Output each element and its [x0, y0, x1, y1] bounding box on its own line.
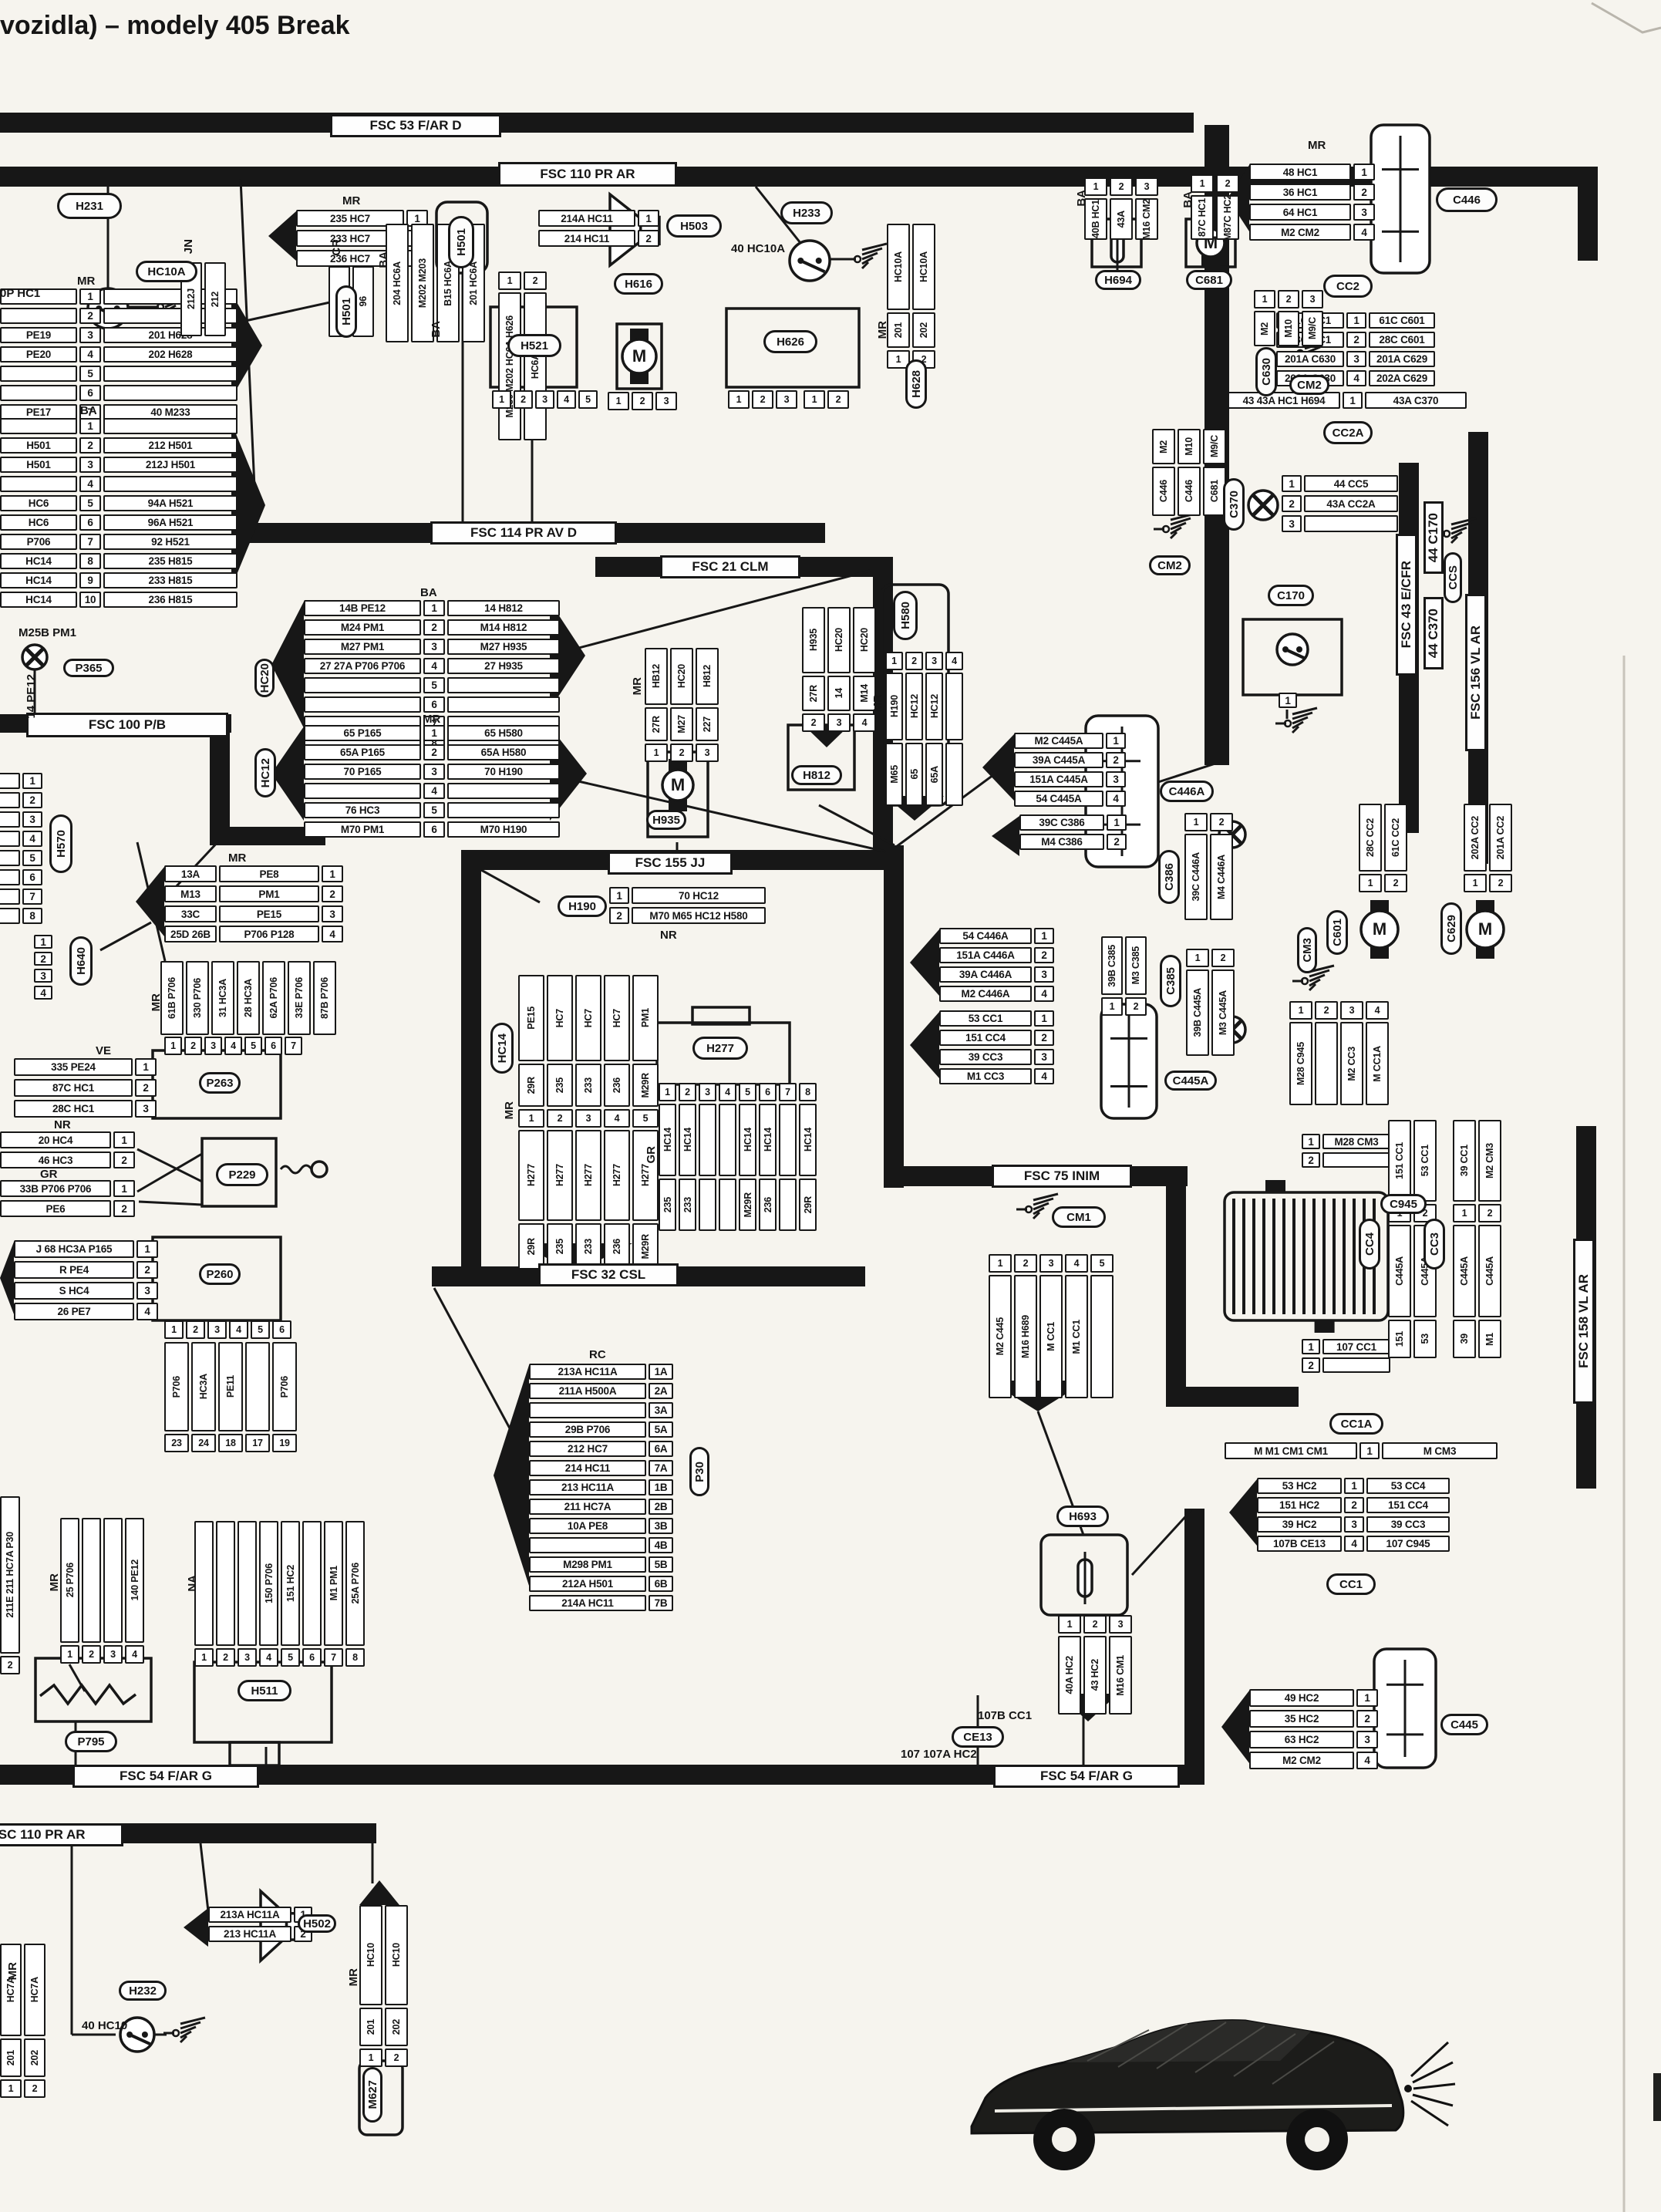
table-cell: PE6	[0, 1200, 111, 1217]
cell-text: 39C C446A	[1191, 852, 1201, 902]
table-cell: 1	[22, 773, 42, 789]
table-row: 25D 26BP706 P1284	[164, 926, 345, 942]
pin-column: HC72352H277235	[547, 975, 573, 1272]
table-cell: M14 H812	[447, 619, 560, 636]
table-cell: M2 C445A	[1014, 733, 1103, 749]
ground-node	[1444, 531, 1450, 537]
wire-cell: HC7A	[0, 1944, 22, 2036]
table-cell: 335 PE24	[14, 1058, 133, 1076]
pin-column: 2	[827, 390, 849, 411]
table-row: 1	[34, 935, 55, 949]
component-label-CM1: CM1	[1052, 1206, 1106, 1228]
table-row: 46 HC32	[0, 1152, 137, 1168]
table-row: 64 HC13	[1249, 204, 1377, 221]
table-row: 13APE81	[164, 865, 345, 882]
table-cell: 4	[1346, 370, 1366, 386]
text-label: MR	[48, 1573, 61, 1594]
pin-cell: 5	[281, 1648, 300, 1667]
component-id: H694	[1104, 274, 1132, 287]
table-row: 65 P165165 H580	[304, 725, 562, 741]
pin-strip-cc3-strip: 39 CC11C445A39M2 CM32C445AM1	[1453, 1120, 1504, 1361]
pin-strip-cc2-motor-l: 28C CC2161C CC22	[1359, 804, 1410, 895]
wire-cell: 202	[385, 2008, 408, 2046]
cell-text: 5	[643, 1113, 649, 1124]
pin-column: 17	[245, 1342, 270, 1455]
pin-column: 3	[103, 1518, 123, 1666]
ground-node	[1026, 1206, 1032, 1212]
text-label: CR	[330, 239, 343, 259]
text-label: NR	[54, 1118, 71, 1131]
pin-cell: 4	[224, 1037, 242, 1055]
text-label: BA	[1181, 191, 1194, 211]
table-row: 2	[1302, 1357, 1393, 1373]
pin-cell: 4	[719, 1083, 736, 1101]
cell-text: M87C HC2	[1222, 195, 1233, 240]
wire-cell: HC20	[827, 607, 851, 673]
wire-cell: C445A	[1478, 1225, 1501, 1317]
switch-contact	[1296, 646, 1302, 652]
cell-text: HC3A	[198, 1374, 209, 1399]
wire	[137, 1149, 202, 1182]
table-cell: H501	[0, 457, 77, 473]
table-row: 151 CC42	[939, 1030, 1056, 1046]
pin-column: 2	[752, 390, 773, 411]
pin-strip-cc2-motor-r: 202A CC21201A CC22	[1464, 804, 1514, 895]
component-label-H501: H501	[448, 216, 474, 268]
table-row: PE115	[0, 850, 45, 866]
table-cell: 3	[1282, 515, 1302, 532]
pin-column: 3HC1265A	[925, 652, 943, 808]
pin-column: 140B HC1	[1084, 177, 1107, 242]
bus-label-text: FSC 110 PR AR	[540, 167, 635, 182]
component-label-C446A: C446A	[1160, 781, 1214, 802]
cell-text: H277	[640, 1164, 651, 1186]
table-cell: HC14	[0, 553, 77, 569]
wire-cell: 25A P706	[345, 1521, 365, 1646]
pin-column: M10C446	[1178, 429, 1201, 518]
table-cell: 2	[322, 885, 343, 902]
cell-text: 2	[193, 1324, 198, 1335]
cell-text: 28 HC3A	[243, 979, 254, 1017]
table-cell: 212J H501	[103, 457, 238, 473]
table-cell: 214 HC11	[538, 230, 635, 247]
connector-table-p263-ve: 335 PE24187C HC1228C HC13	[14, 1058, 159, 1121]
bus-label: 44 C370	[1423, 597, 1444, 669]
table-cell: 39 HC2	[1257, 1516, 1342, 1533]
car-glass	[1064, 2021, 1311, 2062]
table-cell: 25D 26B	[164, 926, 217, 942]
cell-text: H277	[554, 1164, 565, 1186]
component-id: CCS	[1447, 565, 1460, 590]
component-label-M627: M627	[362, 2067, 382, 2123]
table-cell: 1	[609, 887, 629, 904]
wire-cell	[1315, 1022, 1338, 1105]
table-row: HC148235 H815	[0, 553, 240, 569]
table-cell: 5	[423, 802, 445, 818]
pin-cell: 2	[1315, 1001, 1338, 1020]
connector-table-p229-gr: 33B P706 P7061PE62	[0, 1180, 137, 1220]
wire-cell: M9/C	[1302, 311, 1323, 346]
table-cell: 33C	[164, 905, 217, 922]
component-label-C445: C445	[1440, 1714, 1488, 1735]
wire-cell: HC12	[925, 673, 943, 740]
bus-label-text: FSC 100 P/B	[89, 717, 166, 733]
label-text: MR	[631, 677, 644, 695]
pin-cell: 17	[245, 1434, 270, 1452]
table-cell: 214A HC11	[538, 210, 635, 227]
table-cell: 2	[1302, 1357, 1320, 1373]
wire-cell: M CC1A	[1366, 1022, 1389, 1105]
pin-cell: 2	[1083, 1615, 1107, 1634]
wire-cell: 233	[575, 1064, 601, 1107]
wire-cell: HC14	[759, 1104, 777, 1176]
wire	[200, 1843, 208, 1911]
motor-m: M	[671, 775, 685, 794]
component-box	[35, 1658, 151, 1721]
table-cell: 39A C446A	[939, 966, 1032, 983]
cell-text: 3	[214, 1324, 220, 1335]
component-id: HC12	[259, 758, 272, 787]
pin-cell: 5	[632, 1109, 659, 1128]
pin-cell: 2	[679, 1083, 696, 1101]
pin-cell: 3	[1039, 1254, 1063, 1273]
pin-column: H8122273	[696, 648, 719, 764]
component-label-P229: P229	[216, 1163, 268, 1186]
table-row: M298 PM15B	[529, 1556, 676, 1573]
cell-text: 6	[309, 1652, 315, 1663]
pin-cell: 1	[60, 1645, 79, 1664]
component-id: P30	[693, 1462, 706, 1482]
table-cell: 2	[1106, 752, 1126, 768]
table-cell: M4 C386	[1019, 834, 1104, 850]
pin-cell: 2	[1384, 874, 1407, 892]
pin-column: 33E P706	[288, 961, 311, 1037]
table-cell: P706	[0, 773, 20, 789]
pin-strip-c385-left: 39B C3851M3 C3852	[1101, 936, 1149, 1018]
label-text: 14 PE12	[25, 674, 38, 719]
wire-cell: M9/C	[1203, 429, 1226, 464]
table-row: H5013212J H501	[0, 457, 240, 473]
pin-cell: 3	[575, 1109, 601, 1128]
cell-text: M3 C385	[1130, 946, 1141, 984]
table-cell: 1	[79, 288, 101, 305]
cell-text: M10	[1184, 437, 1194, 456]
cell-text: M202 M203	[417, 258, 428, 308]
text-label: NR	[660, 929, 677, 942]
pin-cell: 3	[1109, 1615, 1132, 1634]
table-row: 14B PE12114 H812	[304, 600, 562, 616]
table-cell	[447, 802, 560, 818]
bus-label: FSC 54 F/AR G	[72, 1765, 259, 1788]
pin-column: 28 HC3A	[237, 961, 260, 1037]
table-cell: 4	[1034, 1068, 1054, 1084]
cell-text: 3	[244, 1652, 250, 1663]
component-id: H521	[521, 339, 548, 352]
table-cell: 7	[22, 889, 42, 905]
cell-text: 1	[1473, 878, 1478, 889]
cell-text: 1	[998, 1258, 1003, 1269]
table-cell: 1	[1034, 928, 1054, 944]
table-cell: 39 CC3	[939, 1049, 1032, 1065]
wire-cell: 202	[24, 2038, 45, 2077]
cell-text: HC7	[612, 1009, 622, 1027]
cell-text: 6	[765, 1087, 770, 1098]
table-cell: PE13	[0, 831, 20, 847]
pin-cell: 1	[728, 390, 750, 409]
cell-text: 53	[1420, 1334, 1430, 1344]
pin-column: P70619	[272, 1342, 297, 1455]
connector-table-p229-nr: 20 HC4146 HC32	[0, 1131, 137, 1172]
pin-column: 39 CC11C445A39	[1453, 1120, 1476, 1361]
component-label-P795: P795	[65, 1731, 117, 1752]
table-row: P7066	[0, 869, 45, 885]
pin-column: 2M16 H689	[1014, 1254, 1037, 1401]
connector-table-c170-pin: 1	[1279, 693, 1299, 711]
cell-text: 151 CC1	[1394, 1142, 1405, 1179]
table-row: 3A	[529, 1402, 676, 1418]
cell-text: 1	[171, 1324, 177, 1335]
component-label-CCS: CCS	[1444, 552, 1462, 603]
bus-label: FSC 110 PR AR	[0, 1823, 123, 1846]
table-cell: 6	[423, 696, 445, 713]
cell-text: 1	[1368, 878, 1373, 889]
cell-text: 65A	[929, 766, 940, 783]
table-cell: 87C HC1	[14, 1079, 133, 1097]
pin-cell: 7	[285, 1037, 302, 1055]
wire-cell	[779, 1104, 797, 1176]
pin-column: 3	[204, 1037, 222, 1057]
pin-strip-h277-bottom: 1HC142352HC14233345HC14M29R6HC1423678HC1…	[659, 1083, 819, 1233]
wire-cell: M CC1	[1039, 1275, 1063, 1398]
wire-cell: 39B C385	[1101, 936, 1123, 995]
table-cell: PM1	[0, 889, 20, 905]
cell-text: 2	[1487, 1208, 1493, 1219]
component-id: CC2	[1336, 280, 1359, 293]
component-id: H616	[625, 278, 652, 291]
table-cell: 212 H501	[103, 437, 238, 454]
text-label: 14 PE12	[25, 674, 38, 722]
bus-label-text: FSC 54 F/AR G	[1040, 1769, 1133, 1784]
wire-cell: H935	[802, 607, 825, 673]
table-cell: 28C HC1	[14, 1100, 133, 1118]
connector-table-cc1-107: 1107 CC12	[1302, 1339, 1393, 1376]
table-cell: M1 CC3	[939, 1068, 1032, 1084]
pin-column: 1	[804, 390, 825, 411]
wire-cell: HC14	[739, 1104, 756, 1176]
pin-cell: 3	[1302, 290, 1323, 309]
pin-column: 211E 211 HC7A P302	[0, 1496, 20, 1677]
cell-text: 39B C385	[1107, 945, 1117, 987]
table-cell: 5	[79, 366, 101, 382]
cell-text: M3 C445A	[1218, 990, 1228, 1035]
table-cell: 151A C445A	[1014, 771, 1103, 787]
cell-text: 2	[1219, 817, 1225, 828]
ground-node	[173, 2030, 179, 2036]
cell-text: HC20	[676, 664, 687, 688]
table-row: 65A P165265A H580	[304, 744, 562, 760]
bus-label: FSC 21 CLM	[660, 555, 800, 578]
pin-strip-h694-feed: 140B HC1243A3M16 CM2	[1084, 177, 1161, 242]
pin-strip-h616-pins: 123	[608, 392, 679, 413]
cell-text: 87C HC1	[1197, 198, 1208, 237]
pin-column: 2HC6A	[524, 271, 547, 443]
component-label-H693: H693	[1056, 1506, 1109, 1527]
table-cell: P706	[0, 811, 20, 828]
component-id: CC2A	[1333, 427, 1364, 440]
pin-column: PE1118	[218, 1342, 243, 1455]
pin-column: 5	[251, 1320, 270, 1341]
pin-cell: 1	[1191, 174, 1214, 193]
cell-text: 25 P706	[65, 1563, 76, 1597]
wire-cell: 27R	[645, 707, 668, 741]
wire-cell: P706	[272, 1342, 297, 1431]
component-label-C370: C370	[1223, 478, 1245, 531]
cell-text: 1	[1195, 953, 1201, 963]
component-label-H232: H232	[119, 1981, 167, 2001]
table-cell: 54 C445A	[1014, 791, 1103, 807]
label-text: GR	[40, 1168, 58, 1181]
pin-cell: 18	[218, 1434, 243, 1452]
table-cell: 1	[1107, 814, 1127, 831]
table-cell: 1B	[649, 1479, 673, 1495]
wire-cell: 330 P706	[186, 961, 209, 1035]
pin-column: HC72364H277236	[604, 975, 630, 1272]
component-id: HC20	[258, 663, 271, 693]
wire-cell: M1 CC1	[1065, 1275, 1088, 1398]
table-row: 4B	[529, 1537, 676, 1553]
cell-text: 1	[201, 1652, 207, 1663]
pin-cell: 4	[945, 652, 963, 670]
pin-column: HC20143	[827, 607, 851, 734]
table-row: J 68 HC3A P1651	[14, 1240, 160, 1258]
pin-cell: 2	[82, 1645, 101, 1664]
pin-column: 6	[264, 1037, 282, 1057]
wire-cell: 43 HC2	[1083, 1636, 1107, 1715]
component-id: CC1A	[1341, 1418, 1373, 1431]
table-cell: M70 H190	[447, 821, 560, 838]
table-cell: 1	[1346, 312, 1366, 329]
cell-text: 17	[252, 1438, 263, 1448]
table-cell: 1	[135, 1058, 157, 1076]
bus-label-text: FSC 156 VL AR	[1468, 625, 1484, 720]
label-text: 107B CC1	[978, 1709, 1032, 1722]
connector-table-c446a-feed2: 54 C446A1151A C446A239A C446A3M2 C446A4	[939, 928, 1056, 1005]
table-cell: 1	[1282, 475, 1302, 492]
table-cell: M24 PM1	[304, 619, 421, 636]
table-cell: 4	[22, 831, 42, 847]
pin-cell: 2	[802, 713, 825, 732]
wire-cell: 235	[547, 1064, 573, 1107]
table-cell: M70 M65 HC12 H580	[632, 907, 766, 924]
bus-label: 44 C170	[1423, 501, 1444, 574]
pin-cell: 2	[1278, 290, 1299, 309]
table-row: 87C HC12	[14, 1079, 159, 1097]
component-id: HC10A	[147, 265, 185, 278]
wire-cell: M29R	[632, 1223, 659, 1270]
table-row: 54 C446A1	[939, 928, 1056, 944]
connector-table-h640-pins: 1234	[34, 935, 55, 1003]
text-label: JN	[182, 239, 195, 257]
table-cell: PM1	[219, 885, 319, 902]
cell-text: 204 HC6A	[392, 261, 403, 305]
cell-text: 5	[1100, 1258, 1105, 1269]
cell-text: H935	[808, 629, 819, 651]
cell-text: 201	[893, 322, 904, 338]
key-icon	[312, 1162, 327, 1177]
label-text: MR	[1308, 139, 1326, 152]
table-cell: 1	[1302, 1339, 1320, 1354]
table-row: 211A H500A2A	[529, 1383, 676, 1399]
bus-label: FSC 54 F/AR G	[993, 1765, 1180, 1788]
pin-cell: 1	[1453, 1204, 1476, 1222]
table-cell: PE15	[0, 792, 20, 808]
cell-text: 1	[616, 396, 622, 406]
table-row: 214 HC117A	[529, 1460, 676, 1476]
cell-text: 2	[1225, 178, 1231, 189]
pin-cell: 2	[547, 1109, 573, 1128]
table-cell: 1A	[649, 1364, 673, 1380]
pin-strip-h501-ba: 1M230 M202 HC6A H6262HC6A	[498, 271, 549, 443]
table-cell: 4	[423, 658, 445, 674]
table-cell: 39 CC3	[1366, 1516, 1450, 1533]
table-cell: 39C C386	[1019, 814, 1104, 831]
table-row: M2 C446A4	[939, 986, 1056, 1002]
cell-text: 3	[664, 396, 669, 406]
pin-cell: 1	[659, 1083, 676, 1101]
pin-strip-m627-mr: HC102011HC102022	[359, 1905, 410, 2069]
component-id: CM3	[1301, 938, 1314, 963]
table-cell	[0, 418, 77, 434]
table-row: 3	[34, 969, 55, 983]
cell-text: 140 PE12	[130, 1560, 140, 1600]
pin-strip-p260-pins: 123456	[164, 1320, 294, 1341]
wire-cell: C445A	[1388, 1225, 1411, 1317]
wire-cell: HB12	[645, 648, 668, 705]
cell-text: 330 P706	[192, 978, 203, 1018]
pin-column: 2HC14233	[679, 1083, 696, 1233]
table-cell: P706	[0, 869, 20, 885]
table-row: PE62	[0, 1200, 137, 1217]
table-cell: 213 HC11A	[208, 1926, 291, 1942]
pin-cell: 1	[1101, 997, 1123, 1016]
table-row: HC6696A H521	[0, 514, 240, 531]
component-id: H277	[706, 1042, 734, 1055]
cell-text: 27R	[808, 685, 819, 702]
pin-column: 2	[1315, 1001, 1338, 1108]
table-row: M27 PM13M27 H935	[304, 639, 562, 655]
table-cell: 4	[423, 783, 445, 799]
cell-text: 236	[763, 1197, 773, 1212]
pin-strip-p263-upper: 61B P706330 P70631 HC3A28 HC3A62A P70633…	[160, 961, 339, 1037]
table-cell: 1	[322, 865, 343, 882]
ground-node	[1302, 978, 1308, 984]
component-id: H935	[652, 814, 680, 827]
table-cell: 2	[113, 1152, 135, 1168]
table-cell: 9	[79, 572, 101, 588]
wire-cell: H277	[518, 1130, 544, 1221]
table-cell: 54 C446A	[939, 928, 1032, 944]
pin-column: 8HC1429R	[799, 1083, 817, 1233]
label-text: 40 HC10A	[731, 242, 785, 255]
wire-cell: 39	[1453, 1320, 1476, 1358]
pin-column: HC7A2022	[24, 1944, 45, 2100]
cell-text: H190	[889, 695, 900, 717]
table-cell: 8	[79, 553, 101, 569]
wire-cell: 28C CC2	[1359, 804, 1382, 872]
cell-text: H277	[526, 1164, 537, 1186]
table-cell: 4	[1106, 791, 1126, 807]
cell-text: 3	[705, 747, 710, 758]
